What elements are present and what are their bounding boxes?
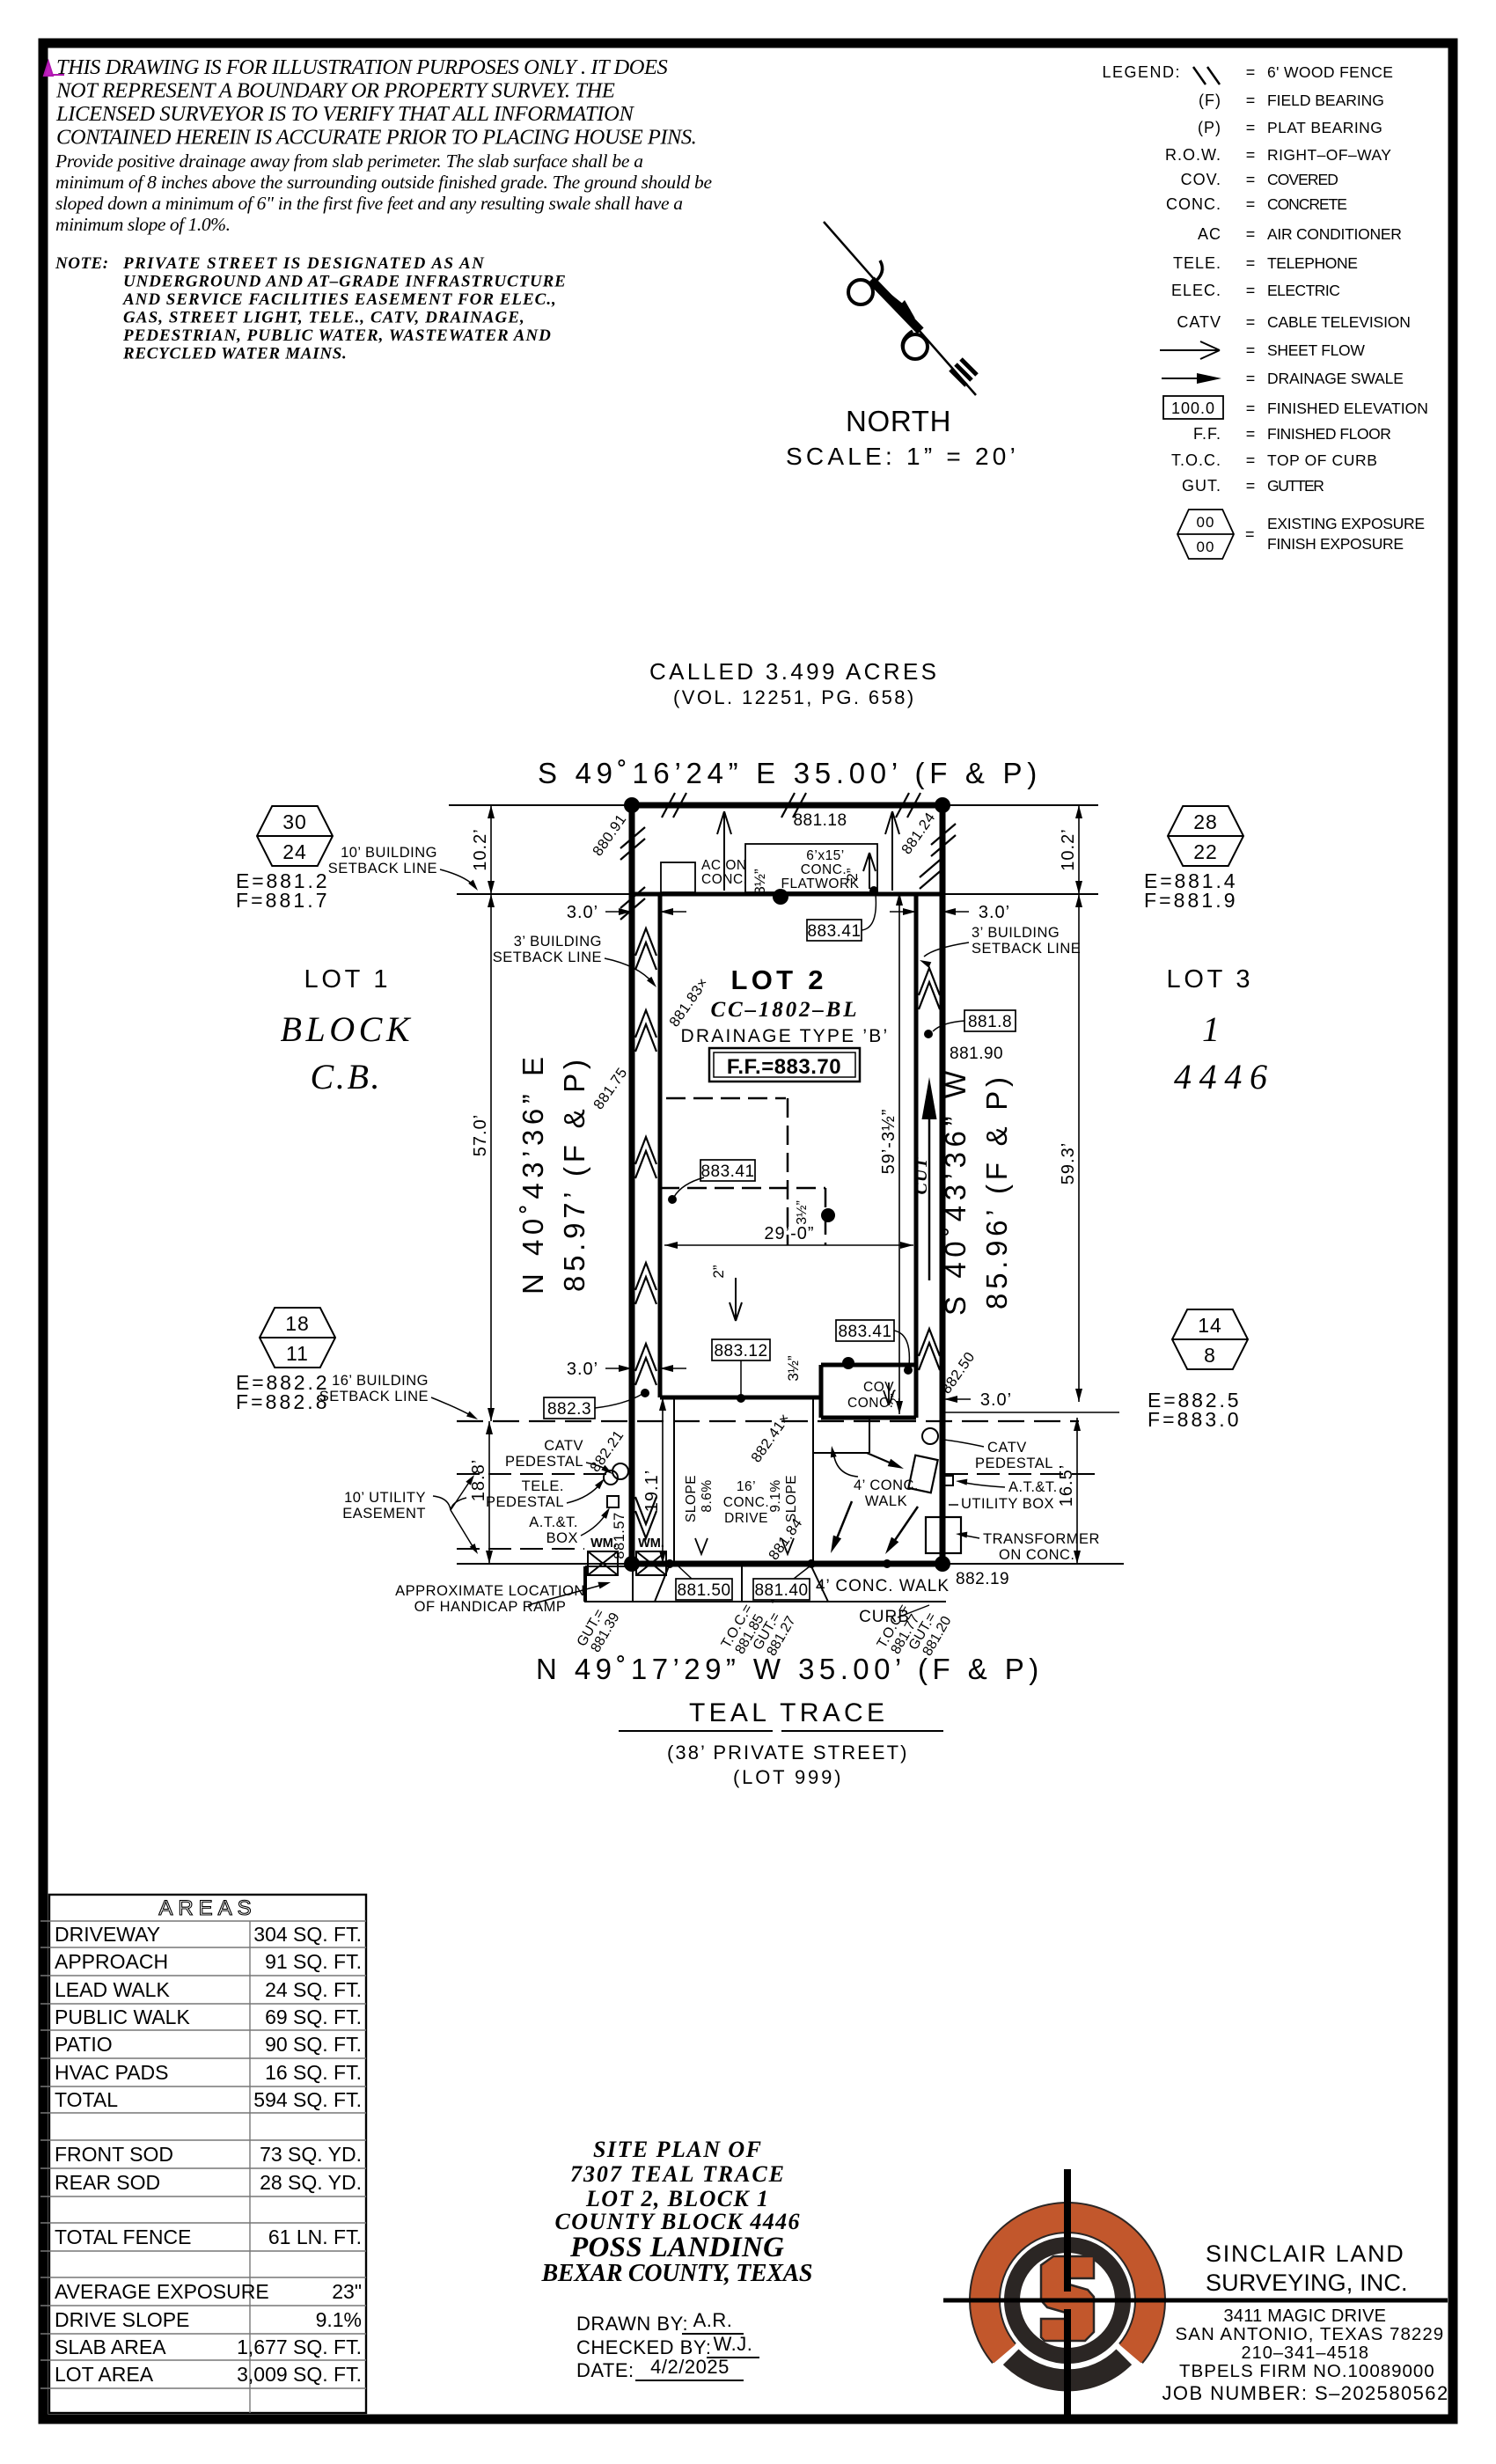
svg-text:3.0’: 3.0’ [979, 903, 1010, 922]
svg-text:=: = [1246, 341, 1256, 359]
svg-text:RECYCLED WATER MAINS.: RECYCLED WATER MAINS. [122, 345, 347, 363]
svg-text:11: 11 [286, 1342, 309, 1365]
svg-text:7307 TEAL TRACE: 7307 TEAL TRACE [570, 2161, 785, 2187]
svg-text:DRIVE SLOPE: DRIVE SLOPE [55, 2308, 189, 2331]
svg-text:APPROACH: APPROACH [55, 1950, 168, 1973]
svg-text:85.96’ (F & P): 85.96’ (F & P) [980, 1075, 1013, 1309]
svg-text:=: = [1246, 92, 1256, 109]
svg-text:=: = [1246, 400, 1256, 417]
svg-text:6’x15’: 6’x15’ [806, 848, 845, 863]
svg-text:CONC.: CONC. [801, 862, 847, 877]
svg-text:(P): (P) [1198, 119, 1221, 136]
svg-text:=: = [1246, 225, 1256, 243]
svg-text:FINISHED FLOOR: FINISHED FLOOR [1267, 425, 1392, 443]
svg-text:3’ BUILDING: 3’ BUILDING [972, 925, 1060, 941]
svg-text:881.50: 881.50 [677, 1581, 730, 1600]
svg-text:594 SQ. FT.: 594 SQ. FT. [253, 2088, 362, 2111]
svg-text:TOP OF CURB: TOP OF CURB [1267, 451, 1378, 469]
svg-text:CONC.: CONC. [847, 1396, 893, 1411]
svg-text:LOT 2: LOT 2 [731, 964, 825, 995]
svg-text:TELE.: TELE. [522, 1478, 564, 1494]
svg-text:=: = [1246, 254, 1256, 272]
svg-text:4/2/2025: 4/2/2025 [650, 2356, 730, 2378]
svg-text:FIELD BEARING: FIELD BEARING [1267, 92, 1385, 109]
svg-text:LOT 1: LOT 1 [304, 965, 392, 994]
svg-text:85.97’ (F & P): 85.97’ (F & P) [558, 1058, 590, 1292]
svg-text:CONTAINED HEREIN IS ACCURATE P: CONTAINED HEREIN IS ACCURATE PRIOR TO PL… [56, 126, 697, 150]
svg-text:10’ BUILDING: 10’ BUILDING [341, 845, 437, 861]
svg-text:PEDESTAL: PEDESTAL [505, 1454, 583, 1470]
svg-text:R.O.W.: R.O.W. [1165, 146, 1221, 164]
svg-text:ELEC.: ELEC. [1171, 282, 1221, 299]
svg-text:(F): (F) [1199, 92, 1221, 109]
svg-text:SAN ANTONIO, TEXAS 78229: SAN ANTONIO, TEXAS 78229 [1176, 2324, 1444, 2344]
svg-text:PLAT BEARING: PLAT BEARING [1267, 119, 1383, 136]
svg-text:GAS, STREET LIGHT, TELE.,: GAS, STREET LIGHT, TELE., CATV, DRAINAGE… [123, 309, 524, 327]
svg-text:16.5’: 16.5’ [1057, 1464, 1076, 1507]
svg-text:WM.: WM. [590, 1536, 617, 1551]
svg-text:COVERED: COVERED [1267, 171, 1339, 188]
svg-text:=: = [1246, 313, 1256, 331]
svg-text:90 SQ. FT.: 90 SQ. FT. [265, 2033, 362, 2056]
svg-text:SINCLAIR LAND: SINCLAIR LAND [1206, 2240, 1404, 2267]
svg-text:CATV: CATV [987, 1440, 1027, 1456]
svg-text:882.3: 882.3 [547, 1400, 591, 1419]
svg-text:3½”: 3½” [795, 1200, 810, 1225]
svg-text:ON CONC.: ON CONC. [999, 1547, 1075, 1563]
svg-text:BOX: BOX [546, 1530, 578, 1546]
svg-text:CABLE TELEVISION: CABLE TELEVISION [1267, 313, 1412, 331]
svg-text:=: = [1246, 119, 1256, 136]
svg-text:00: 00 [1197, 514, 1215, 531]
svg-text:881.18: 881.18 [793, 811, 847, 830]
svg-text:91 SQ. FT.: 91 SQ. FT. [265, 1950, 362, 1973]
svg-text:(LOT 999): (LOT 999) [733, 1766, 842, 1788]
svg-text:RIGHT–OF–WAY: RIGHT–OF–WAY [1267, 146, 1392, 164]
svg-text:=: = [1246, 477, 1256, 495]
svg-text:=: = [1245, 525, 1256, 543]
svg-text:A.T.&T.: A.T.&T. [1008, 1479, 1058, 1495]
svg-text:SCALE: 1” = 20’: SCALE: 1” = 20’ [786, 443, 1016, 470]
svg-text:=: = [1246, 282, 1256, 299]
svg-text:8.6%: 8.6% [700, 1479, 715, 1512]
svg-text:FLATWORK: FLATWORK [781, 876, 860, 891]
svg-text:61 LN. FT.: 61 LN. FT. [268, 2226, 362, 2248]
svg-text:=: = [1246, 451, 1256, 469]
svg-text:AIR CONDITIONER: AIR CONDITIONER [1267, 225, 1403, 243]
svg-text:9.1%: 9.1% [316, 2308, 362, 2331]
svg-text:DRIVE: DRIVE [724, 1511, 768, 1526]
svg-text:DRAINAGE SWALE: DRAINAGE SWALE [1267, 370, 1404, 387]
svg-text:minimum of 8 inches above the: minimum of 8 inches above the surroundin… [55, 172, 712, 193]
svg-text:ELECTRIC: ELECTRIC [1267, 282, 1341, 299]
svg-text:DRAWN BY:: DRAWN BY: [576, 2313, 688, 2335]
svg-text:LICENSED SURVEYOR IS TO VERIFY: LICENSED SURVEYOR IS TO VERIFY THAT ALL … [55, 102, 634, 126]
svg-text:TBPELS FIRM NO.10089000: TBPELS FIRM NO.10089000 [1179, 2361, 1434, 2381]
svg-text:JOB NUMBER: S–202580562: JOB NUMBER: S–202580562 [1162, 2382, 1448, 2404]
svg-text:AC ON: AC ON [701, 858, 747, 873]
svg-text:=: = [1246, 425, 1256, 443]
svg-text:BLOCK: BLOCK [281, 1009, 412, 1049]
svg-text:AC: AC [1198, 225, 1221, 243]
svg-text:24: 24 [282, 840, 307, 863]
svg-text:59.3’: 59.3’ [1059, 1142, 1078, 1184]
svg-text:SLOPE: SLOPE [784, 1475, 799, 1522]
svg-text:3½”: 3½” [752, 869, 768, 895]
svg-text:LOT 2, BLOCK 1: LOT 2, BLOCK 1 [585, 2186, 769, 2211]
svg-text:22: 22 [1193, 840, 1218, 863]
svg-text:1,677 SQ. FT.: 1,677 SQ. FT. [237, 2336, 362, 2358]
svg-text:881.90: 881.90 [950, 1045, 1003, 1063]
svg-text:WALK: WALK [865, 1493, 907, 1509]
svg-text:UTILITY BOX: UTILITY BOX [961, 1496, 1054, 1512]
svg-text:Provide positive drainage away: Provide positive drainage away from slab… [55, 150, 643, 172]
svg-text:=: = [1246, 63, 1256, 81]
svg-text:SETBACK LINE: SETBACK LINE [328, 861, 437, 876]
svg-text:18: 18 [285, 1312, 310, 1335]
svg-text:SITE PLAN OF: SITE PLAN OF [593, 2137, 762, 2162]
svg-text:BEXAR COUNTY, TEXAS: BEXAR COUNTY, TEXAS [541, 2260, 814, 2287]
svg-text:F.F.: F.F. [1193, 425, 1221, 443]
svg-text:PUBLIC WALK: PUBLIC WALK [55, 2006, 190, 2028]
svg-text:TELE.: TELE. [1173, 254, 1221, 272]
svg-text:CONC.: CONC. [1166, 195, 1221, 213]
svg-text:3,009 SQ. FT.: 3,009 SQ. FT. [237, 2363, 362, 2386]
svg-text:4’ CONC. WALK: 4’ CONC. WALK [816, 1577, 950, 1595]
svg-text:WM.: WM. [638, 1536, 664, 1551]
svg-text:FINISH EXPOSURE: FINISH EXPOSURE [1267, 535, 1404, 553]
svg-text:TOTAL FENCE: TOTAL FENCE [55, 2226, 192, 2248]
svg-text:F.F.=883.70: F.F.=883.70 [727, 1055, 841, 1079]
svg-text:CATV: CATV [1177, 313, 1221, 331]
svg-text:NOTE:: NOTE: [55, 254, 109, 273]
svg-text:28 SQ. YD.: 28 SQ. YD. [260, 2171, 362, 2194]
svg-text:UNDERGROUND AND AT–GRADE IN: UNDERGROUND AND AT–GRADE INFRASTRUCTURE [123, 273, 566, 291]
svg-text:883.41: 883.41 [807, 922, 861, 941]
svg-text:HVAC PADS: HVAC PADS [55, 2061, 169, 2084]
svg-text:NOT REPRESENT A BOUNDARY OR PR: NOT REPRESENT A BOUNDARY OR PROPERTY SUR… [55, 79, 615, 103]
svg-text:SETBACK LINE: SETBACK LINE [972, 941, 1081, 957]
svg-text:(38’ PRIVATE STREET): (38’ PRIVATE STREET) [667, 1742, 908, 1764]
svg-text:10.2’: 10.2’ [1059, 828, 1078, 870]
svg-text:COUNTY BLOCK 4446: COUNTY BLOCK 4446 [555, 2209, 801, 2234]
svg-text:883.41: 883.41 [838, 1323, 891, 1341]
svg-text:883.12: 883.12 [714, 1342, 767, 1360]
svg-text:30: 30 [282, 810, 307, 833]
svg-text:CALLED 3.499 ACRES: CALLED 3.499 ACRES [649, 658, 938, 685]
svg-text:881.8: 881.8 [968, 1013, 1012, 1031]
svg-text:PATIO: PATIO [55, 2033, 113, 2056]
svg-text:CONC.: CONC. [723, 1495, 769, 1510]
svg-text:3’ BUILDING: 3’ BUILDING [514, 934, 602, 950]
svg-text:3½”: 3½” [785, 1355, 802, 1382]
svg-text:00: 00 [1197, 539, 1215, 555]
svg-text:minimum slope of 1.0%.: minimum slope of 1.0%. [55, 214, 231, 235]
svg-text:W.J.: W.J. [714, 2333, 753, 2355]
svg-text:LOT AREA: LOT AREA [55, 2363, 154, 2386]
svg-text:S 40˚43’36” W: S 40˚43’36” W [939, 1069, 972, 1316]
svg-text:TELEPHONE: TELEPHONE [1267, 254, 1359, 272]
svg-text:29’-0”: 29’-0” [764, 1224, 814, 1243]
svg-text:SETBACK LINE: SETBACK LINE [493, 950, 602, 965]
svg-text:2”: 2” [710, 1265, 727, 1278]
svg-text:CUT: CUT [912, 1157, 931, 1195]
svg-text:LOT 3: LOT 3 [1167, 965, 1254, 994]
svg-text:3.0’: 3.0’ [567, 903, 598, 922]
svg-text:23": 23" [332, 2280, 362, 2303]
svg-text:COV.: COV. [863, 1380, 897, 1395]
svg-text:3.0’: 3.0’ [567, 1360, 598, 1379]
svg-text:FINISHED ELEVATION: FINISHED ELEVATION [1267, 400, 1429, 417]
svg-text:TRANSFORMER: TRANSFORMER [983, 1531, 1100, 1547]
svg-text:210–341–4518: 210–341–4518 [1242, 2343, 1369, 2363]
svg-text:=: = [1246, 171, 1256, 188]
svg-text:3411 MAGIC DRIVE: 3411 MAGIC DRIVE [1224, 2306, 1387, 2326]
svg-text:8: 8 [1204, 1344, 1216, 1367]
svg-text:16 SQ. FT.: 16 SQ. FT. [265, 2061, 362, 2084]
svg-text:GUTTER: GUTTER [1267, 477, 1325, 495]
svg-text:59’-3½”: 59’-3½” [879, 1109, 898, 1175]
svg-text:DATE:: DATE: [576, 2359, 634, 2381]
svg-text:LEGEND:: LEGEND: [1102, 63, 1181, 81]
svg-text:THIS DRAWING IS FOR ILLUSTRATI: THIS DRAWING IS FOR ILLUSTRATION PURPOSE… [56, 55, 668, 79]
svg-text:SURVEYING, INC.: SURVEYING, INC. [1206, 2270, 1408, 2296]
svg-text:1: 1 [1202, 1009, 1221, 1049]
svg-text:COV.: COV. [1181, 171, 1221, 188]
svg-text:A.R.: A.R. [693, 2309, 733, 2331]
svg-text:6' WOOD FENCE: 6' WOOD FENCE [1267, 63, 1394, 81]
svg-text:73 SQ. YD.: 73 SQ. YD. [260, 2143, 362, 2166]
svg-text:AND SERVICE FACILITIES EASE: AND SERVICE FACILITIES EASEMENT FOR ELEC… [122, 290, 556, 309]
svg-text:(VOL. 12251, PG. 658): (VOL. 12251, PG. 658) [673, 686, 914, 708]
svg-text:EXISTING EXPOSURE: EXISTING EXPOSURE [1267, 515, 1426, 532]
svg-text:SETBACK LINE: SETBACK LINE [319, 1389, 429, 1404]
svg-text:16’ BUILDING: 16’ BUILDING [332, 1373, 429, 1389]
svg-text:SHEET FLOW: SHEET FLOW [1267, 341, 1366, 359]
svg-text:9.1%: 9.1% [768, 1479, 783, 1512]
svg-text:881.40: 881.40 [754, 1581, 808, 1600]
svg-text:EASEMENT: EASEMENT [342, 1506, 426, 1522]
svg-text:DRIVEWAY: DRIVEWAY [55, 1923, 160, 1946]
svg-text:A.T.&T.: A.T.&T. [529, 1514, 578, 1530]
svg-text:28: 28 [1193, 810, 1218, 833]
svg-text:AREAS: AREAS [158, 1896, 256, 1920]
svg-text:sloped down a minimum of 6" in: sloped down a minimum of 6" in the first… [55, 193, 683, 214]
svg-text:T.O.C.: T.O.C. [1171, 451, 1221, 469]
svg-text:882.19: 882.19 [956, 1570, 1009, 1588]
svg-text:14: 14 [1198, 1314, 1222, 1337]
svg-text:CATV: CATV [544, 1438, 583, 1454]
svg-text:AVERAGE EXPOSURE: AVERAGE EXPOSURE [55, 2280, 269, 2303]
svg-text:LEAD WALK: LEAD WALK [55, 1978, 170, 2001]
svg-text:10.2’: 10.2’ [471, 828, 490, 870]
svg-text:PEDESTAL: PEDESTAL [975, 1456, 1053, 1471]
svg-text:=: = [1246, 146, 1256, 164]
svg-text:SLOPE: SLOPE [684, 1475, 699, 1522]
svg-text:883.41: 883.41 [700, 1162, 754, 1181]
svg-text:57.0’: 57.0’ [471, 1114, 490, 1156]
svg-text:=: = [1246, 195, 1256, 213]
svg-text:3.0’: 3.0’ [980, 1390, 1012, 1410]
svg-text:GUT.: GUT. [1182, 477, 1221, 495]
svg-text:TEAL TRACE: TEAL TRACE [689, 1698, 886, 1727]
svg-text:69 SQ. FT.: 69 SQ. FT. [265, 2006, 362, 2028]
svg-text:16’: 16’ [737, 1479, 756, 1494]
svg-text:DRAINAGE TYPE ’B’: DRAINAGE TYPE ’B’ [681, 1026, 888, 1046]
svg-text:REAR SOD: REAR SOD [55, 2171, 160, 2194]
svg-text:CONCRETE: CONCRETE [1267, 195, 1348, 213]
svg-text:PEDESTAL: PEDESTAL [486, 1494, 564, 1510]
svg-text:POSS LANDING: POSS LANDING [569, 2232, 785, 2263]
svg-text:PEDESTRIAN, PUBLIC WATER, W: PEDESTRIAN, PUBLIC WATER, WASTEWATER AND [122, 326, 551, 345]
svg-text:SLAB AREA: SLAB AREA [55, 2336, 166, 2358]
svg-text:TOTAL: TOTAL [55, 2088, 118, 2111]
svg-text:C.B.: C.B. [311, 1057, 382, 1096]
svg-text:304 SQ. FT.: 304 SQ. FT. [253, 1923, 362, 1946]
svg-text:10’ UTILITY: 10’ UTILITY [344, 1490, 426, 1506]
svg-text:24 SQ. FT.: 24 SQ. FT. [265, 1978, 362, 2001]
svg-text:100.0: 100.0 [1171, 400, 1215, 417]
svg-text:FRONT SOD: FRONT SOD [55, 2143, 173, 2166]
svg-text:CONC.: CONC. [701, 872, 747, 887]
svg-text:NORTH: NORTH [846, 405, 953, 437]
svg-text:APPROXIMATE LOCATION: APPROXIMATE LOCATION [395, 1583, 585, 1599]
svg-text:=: = [1246, 370, 1256, 387]
